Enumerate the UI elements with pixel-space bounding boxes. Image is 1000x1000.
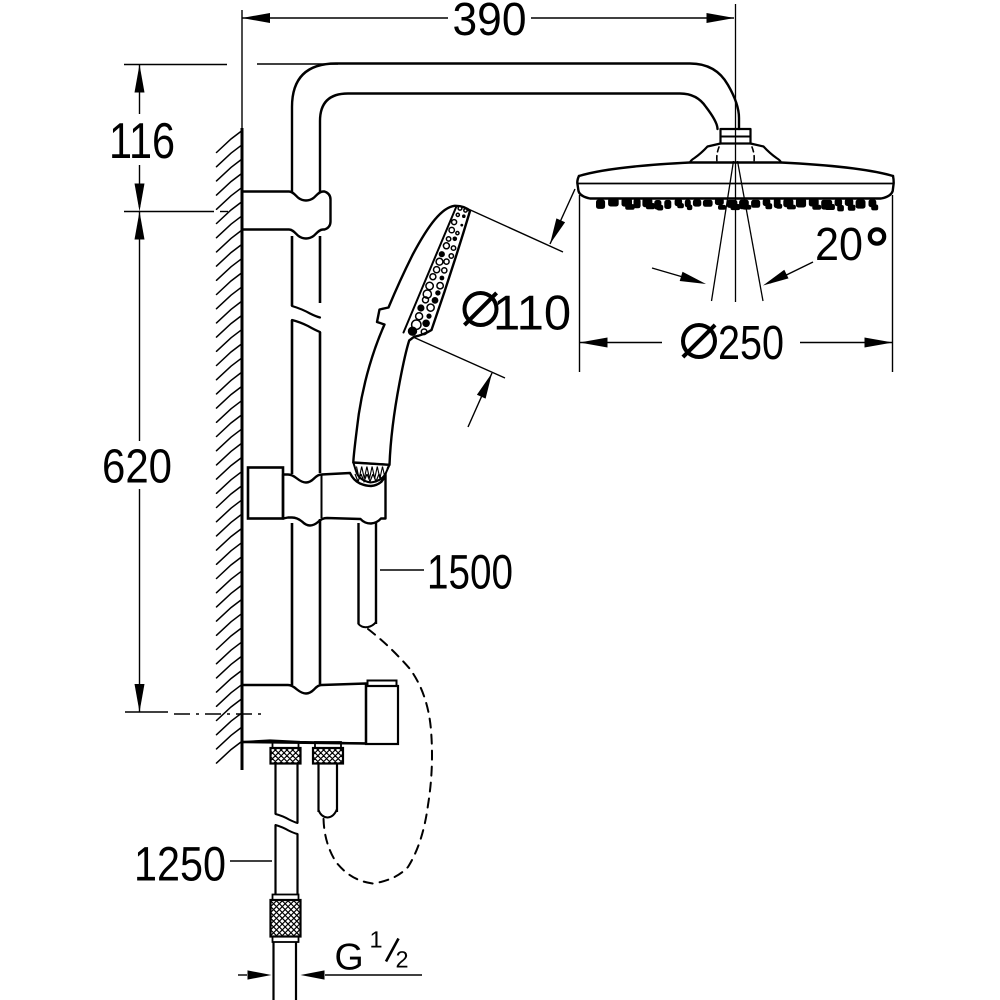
svg-text:250: 250 [718, 317, 784, 370]
svg-text:2: 2 [396, 947, 409, 973]
svg-text:20: 20 [815, 218, 863, 270]
svg-text:620: 620 [102, 441, 172, 494]
svg-text:390: 390 [453, 0, 527, 45]
svg-text:G: G [335, 936, 364, 978]
svg-text:1: 1 [370, 927, 383, 953]
svg-text:116: 116 [109, 112, 175, 169]
svg-text:110: 110 [493, 287, 571, 341]
svg-text:1500: 1500 [427, 546, 513, 600]
svg-text:1250: 1250 [134, 838, 226, 892]
